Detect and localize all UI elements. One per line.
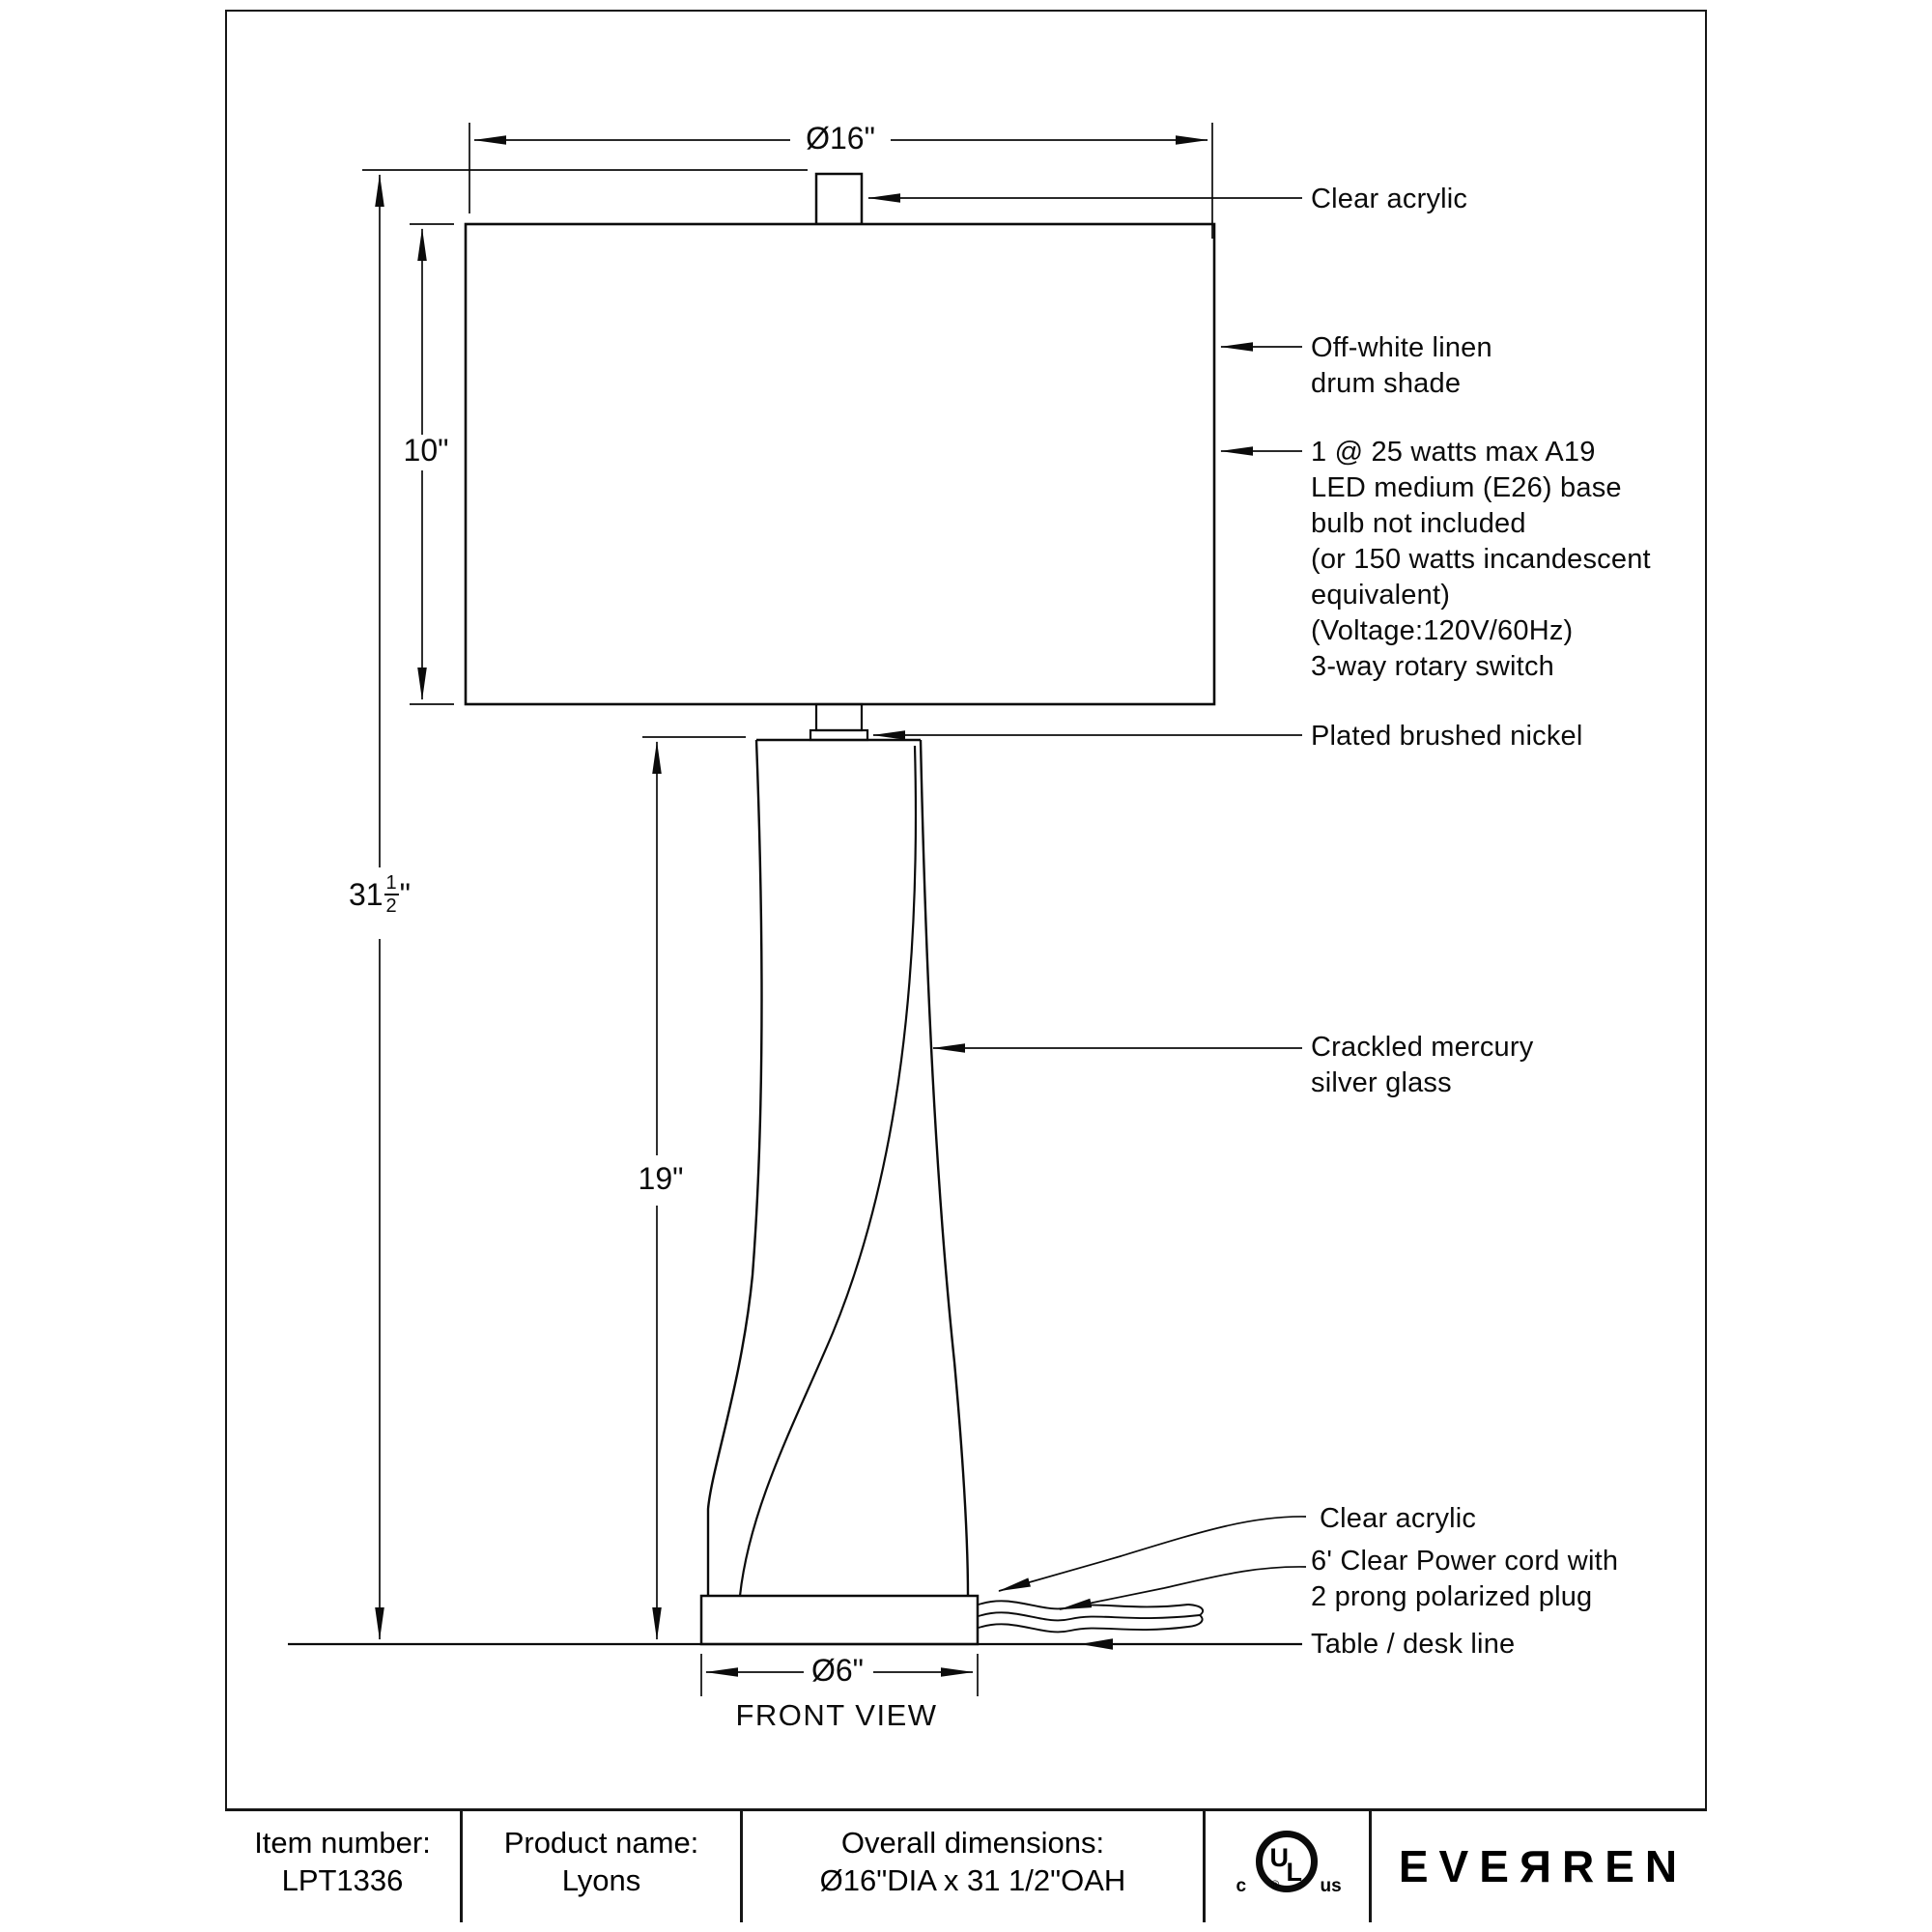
ul-certification-cell: c U L ® us: [1206, 1811, 1372, 1922]
overall-dimensions-value: Ø16"DIA x 31 1/2"OAH: [820, 1861, 1126, 1899]
product-name-label: Product name:: [504, 1824, 699, 1861]
power-cord: [979, 1601, 1203, 1632]
drum-shade-outline: [466, 224, 1214, 704]
title-block: Item number: LPT1336 Product name: Lyons…: [225, 1808, 1707, 1922]
finial-outline: [816, 174, 862, 224]
item-number-label: Item number:: [254, 1824, 431, 1861]
product-name-value: Lyons: [562, 1861, 641, 1899]
overall-dimensions-label: Overall dimensions:: [841, 1824, 1104, 1861]
technical-drawing: [0, 0, 1932, 1932]
callout-bulb: 1 @ 25 watts max A19 LED medium (E26) ba…: [1311, 435, 1651, 685]
ul-circle: U L ®: [1256, 1831, 1318, 1892]
body-twist-curve: [740, 746, 916, 1596]
ul-us-mark: us: [1321, 1867, 1342, 1905]
leader-cord: [1060, 1567, 1306, 1609]
ul-listed-icon: c U L ® us: [1225, 1829, 1350, 1906]
overall-dimensions-cell: Overall dimensions: Ø16"DIA x 31 1/2"OAH: [743, 1811, 1206, 1922]
dim-31-denominator: 2: [386, 895, 397, 916]
neck-outline: [816, 704, 862, 730]
leader-base: [999, 1517, 1306, 1591]
dim-text-body-height: 19": [639, 1162, 684, 1195]
dim-text-overall-height: 3112": [349, 873, 411, 917]
brand-cell: EVEЯREN: [1372, 1811, 1707, 1922]
dim-text-shade-height: 10": [404, 434, 449, 467]
body-right-edge: [921, 740, 968, 1596]
callout-finial: Clear acrylic: [1311, 182, 1467, 217]
ul-c-mark: c: [1236, 1867, 1247, 1905]
spec-sheet: Ø16" 10" 3112" 19" Ø6" FRONT VIEW Clear …: [0, 0, 1932, 1932]
dim-31-numerator: 1: [384, 873, 399, 895]
collar-outline: [810, 730, 867, 740]
brand-logo: EVEЯREN: [1391, 1848, 1688, 1886]
product-name-cell: Product name: Lyons: [463, 1811, 743, 1922]
callout-cord: 6' Clear Power cord with 2 prong polariz…: [1311, 1544, 1618, 1615]
ul-registered-mark: ®: [1271, 1866, 1280, 1904]
callout-neck: Plated brushed nickel: [1311, 719, 1582, 754]
table-line-arrowhead: [1080, 1638, 1113, 1650]
ul-letter-l: L: [1287, 1854, 1303, 1891]
callout-base: Clear acrylic: [1320, 1501, 1476, 1537]
callout-body: Crackled mercury silver glass: [1311, 1030, 1533, 1101]
dim-31-fraction: 12: [384, 873, 399, 917]
dim-31-unit: ": [400, 878, 411, 911]
view-title: FRONT VIEW: [735, 1698, 937, 1733]
dim-text-base-diameter: Ø6": [811, 1654, 864, 1687]
dim-text-shade-diameter: Ø16": [806, 122, 875, 155]
item-number-cell: Item number: LPT1336: [225, 1811, 463, 1922]
callout-table-line: Table / desk line: [1311, 1627, 1515, 1662]
dim-31-whole: 31: [349, 878, 384, 911]
item-number-value: LPT1336: [282, 1861, 404, 1899]
callout-shade: Off-white linen drum shade: [1311, 330, 1492, 402]
base-outline: [701, 1596, 978, 1644]
body-left-edge: [708, 740, 762, 1596]
